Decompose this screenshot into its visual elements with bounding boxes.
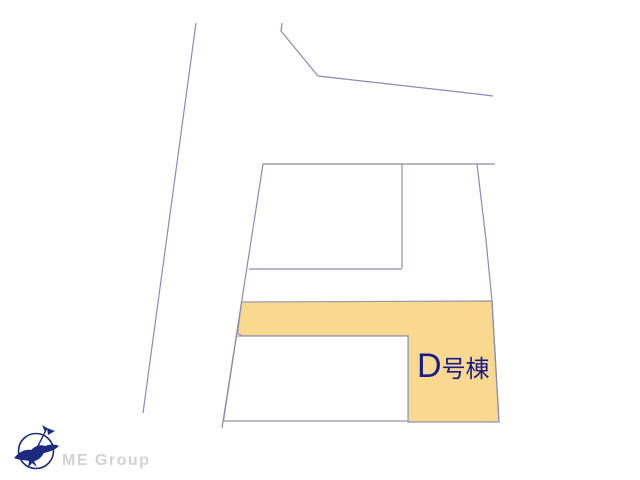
lot-d-label-letter: D xyxy=(417,347,442,385)
brand-block: ME Group xyxy=(10,421,62,475)
lot-d-label-suffix: 号棟 xyxy=(442,356,490,383)
compass-bird-logo xyxy=(10,421,62,475)
site-plan-page: D号棟 ME Group xyxy=(0,0,640,480)
road-edge-left-line xyxy=(143,23,196,413)
road-edge-top-right-line xyxy=(281,23,493,96)
brand-name: ME Group xyxy=(62,452,150,470)
site-plan-diagram: D号棟 xyxy=(0,0,640,480)
logo-needle-pennant xyxy=(47,428,55,435)
lot-lower-white xyxy=(224,336,409,421)
